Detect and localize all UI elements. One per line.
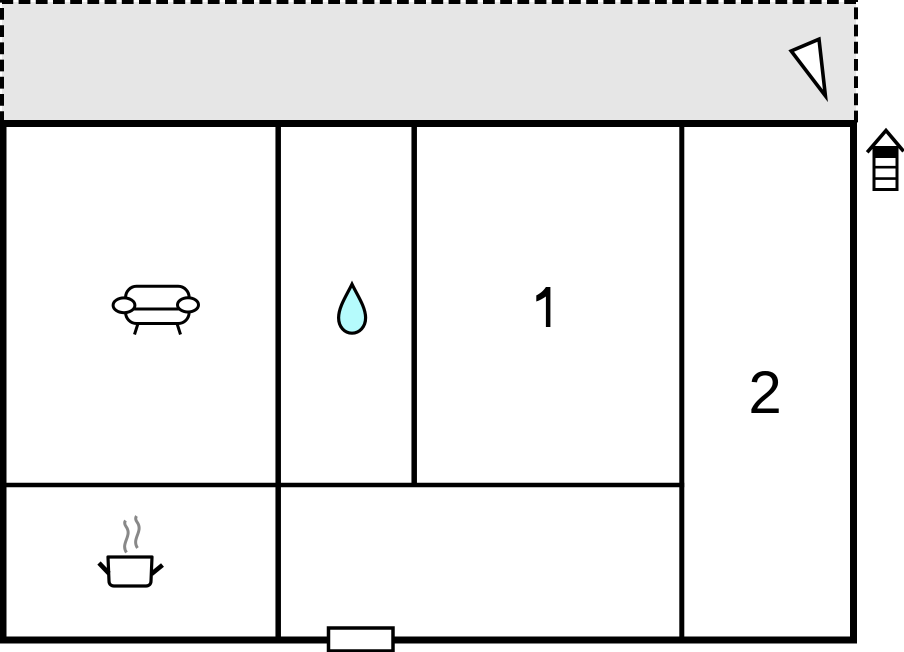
- svg-text:2: 2: [748, 359, 781, 426]
